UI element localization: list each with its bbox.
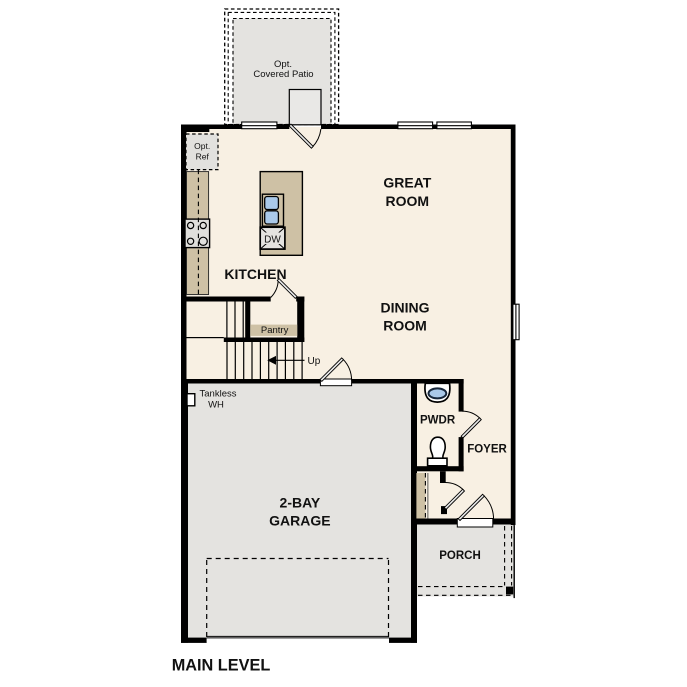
svg-text:Tankless: Tankless — [200, 388, 237, 399]
svg-text:Pantry: Pantry — [261, 325, 289, 336]
svg-text:FOYER: FOYER — [467, 444, 507, 456]
svg-text:Opt.: Opt. — [194, 141, 210, 151]
svg-text:GARAGE: GARAGE — [269, 512, 330, 528]
svg-text:MAIN LEVEL: MAIN LEVEL — [172, 657, 271, 675]
svg-text:Up: Up — [308, 356, 321, 367]
svg-text:PORCH: PORCH — [439, 550, 481, 562]
svg-text:ROOM: ROOM — [386, 193, 430, 209]
svg-text:2-BAY: 2-BAY — [280, 495, 321, 511]
svg-text:Opt.: Opt. — [274, 59, 292, 70]
svg-text:GREAT: GREAT — [383, 175, 431, 191]
svg-text:PWDR: PWDR — [420, 414, 456, 426]
svg-text:ROOM: ROOM — [383, 317, 427, 333]
svg-text:DINING: DINING — [381, 299, 430, 315]
svg-text:KITCHEN: KITCHEN — [224, 266, 286, 282]
svg-text:DW: DW — [264, 234, 281, 245]
svg-text:Ref: Ref — [196, 151, 210, 161]
svg-text:WH: WH — [208, 400, 224, 411]
svg-text:Covered Patio: Covered Patio — [253, 69, 313, 80]
